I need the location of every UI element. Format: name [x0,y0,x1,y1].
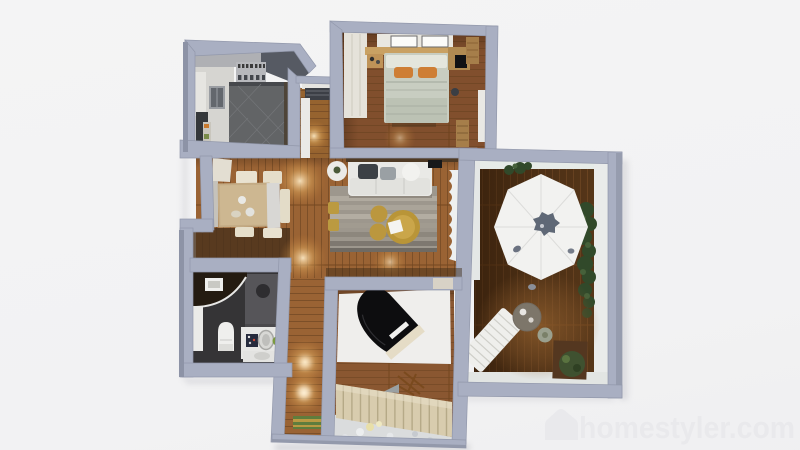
svg-text:homestyler.com: homestyler.com [579,410,795,445]
